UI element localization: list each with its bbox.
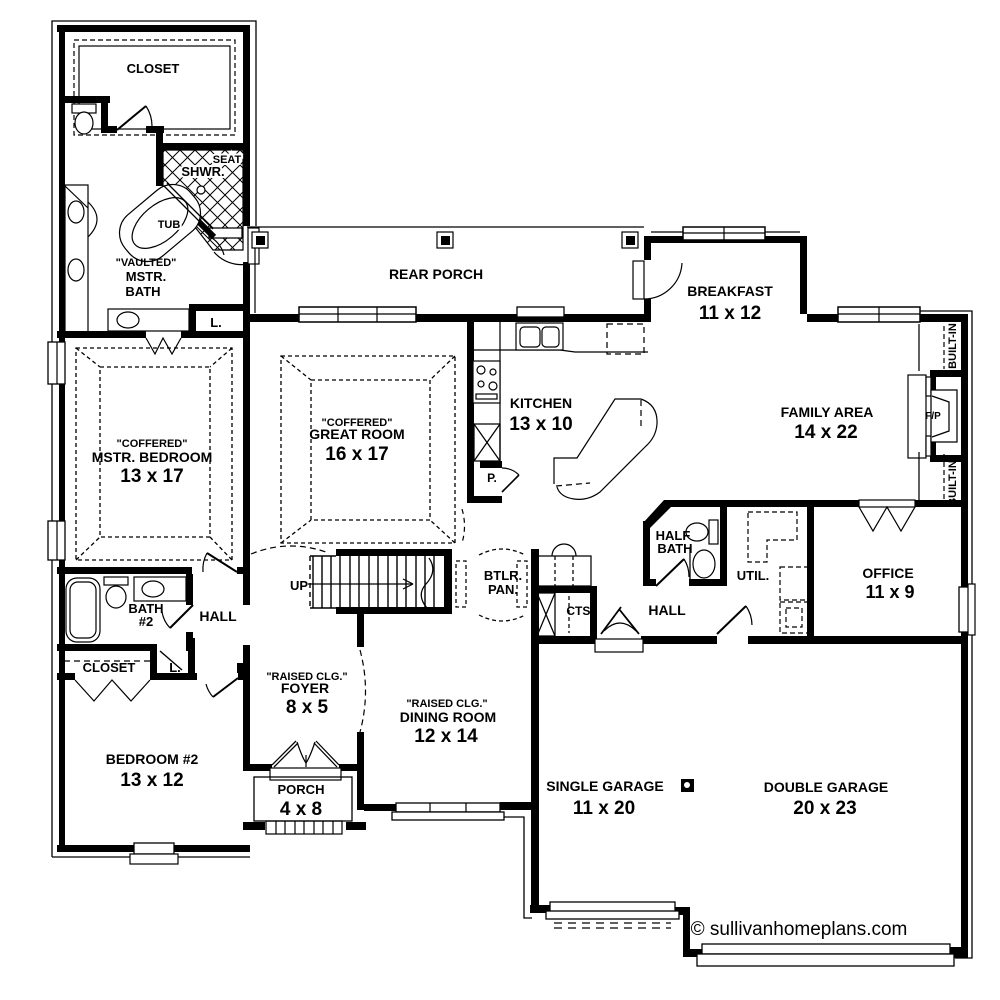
svg-text:MSTR.: MSTR. <box>126 269 166 284</box>
svg-text:SHWR.: SHWR. <box>181 164 224 179</box>
svg-text:PAN.: PAN. <box>488 582 518 597</box>
svg-text:16 x 17: 16 x 17 <box>325 444 388 465</box>
svg-text:13 x 10: 13 x 10 <box>509 414 572 435</box>
svg-text:DOUBLE GARAGE: DOUBLE GARAGE <box>764 779 888 795</box>
svg-text:GREAT ROOM: GREAT ROOM <box>309 426 404 442</box>
svg-text:OFFICE: OFFICE <box>862 565 913 581</box>
svg-text:BATH: BATH <box>657 541 692 556</box>
svg-text:KITCHEN: KITCHEN <box>510 395 572 411</box>
svg-text:13 x 17: 13 x 17 <box>120 466 183 487</box>
svg-text:L.: L. <box>210 315 222 330</box>
svg-text:DINING ROOM: DINING ROOM <box>400 709 496 725</box>
svg-text:L.: L. <box>169 660 181 675</box>
svg-text:BTLR.: BTLR. <box>484 568 522 583</box>
svg-text:12 x 14: 12 x 14 <box>414 726 478 747</box>
svg-text:PORCH: PORCH <box>278 782 325 797</box>
svg-text:BEDROOM #2: BEDROOM #2 <box>106 751 199 767</box>
svg-text:20 x 23: 20 x 23 <box>793 798 856 819</box>
svg-text:REAR PORCH: REAR PORCH <box>389 266 483 282</box>
svg-text:HALL: HALL <box>648 602 686 618</box>
svg-text:FAMILY AREA: FAMILY AREA <box>781 404 874 420</box>
svg-text:BUILT-IN: BUILT-IN <box>947 460 959 506</box>
svg-text:BREAKFAST: BREAKFAST <box>687 283 773 299</box>
svg-text:#2: #2 <box>139 614 153 629</box>
svg-text:11 x 20: 11 x 20 <box>573 798 635 819</box>
svg-text:BATH: BATH <box>125 284 160 299</box>
svg-text:HALL: HALL <box>199 608 237 624</box>
svg-text:TUB: TUB <box>158 219 181 231</box>
svg-text:13 x 12: 13 x 12 <box>120 770 183 791</box>
svg-text:© sullivanhomeplans.com: © sullivanhomeplans.com <box>691 919 908 940</box>
svg-text:FOYER: FOYER <box>281 680 329 696</box>
svg-text:SINGLE GARAGE: SINGLE GARAGE <box>546 778 663 794</box>
svg-text:MSTR. BEDROOM: MSTR. BEDROOM <box>92 449 213 465</box>
svg-text:14 x 22: 14 x 22 <box>794 422 857 443</box>
svg-text:11 x 9: 11 x 9 <box>865 582 914 602</box>
svg-text:CTS.: CTS. <box>566 604 593 618</box>
svg-text:8 x 5: 8 x 5 <box>286 697 329 718</box>
svg-text:CLOSET: CLOSET <box>83 660 136 675</box>
svg-text:UP: UP <box>290 578 308 593</box>
svg-text:4 x 8: 4 x 8 <box>280 799 322 820</box>
svg-text:"VAULTED": "VAULTED" <box>116 257 177 269</box>
svg-text:P.: P. <box>487 471 497 485</box>
svg-text:11 x 12: 11 x 12 <box>699 303 761 324</box>
svg-text:CLOSET: CLOSET <box>127 61 180 76</box>
svg-text:BUILT-IN: BUILT-IN <box>947 323 959 369</box>
svg-text:F/P: F/P <box>925 411 941 422</box>
svg-text:UTIL.: UTIL. <box>737 568 770 583</box>
